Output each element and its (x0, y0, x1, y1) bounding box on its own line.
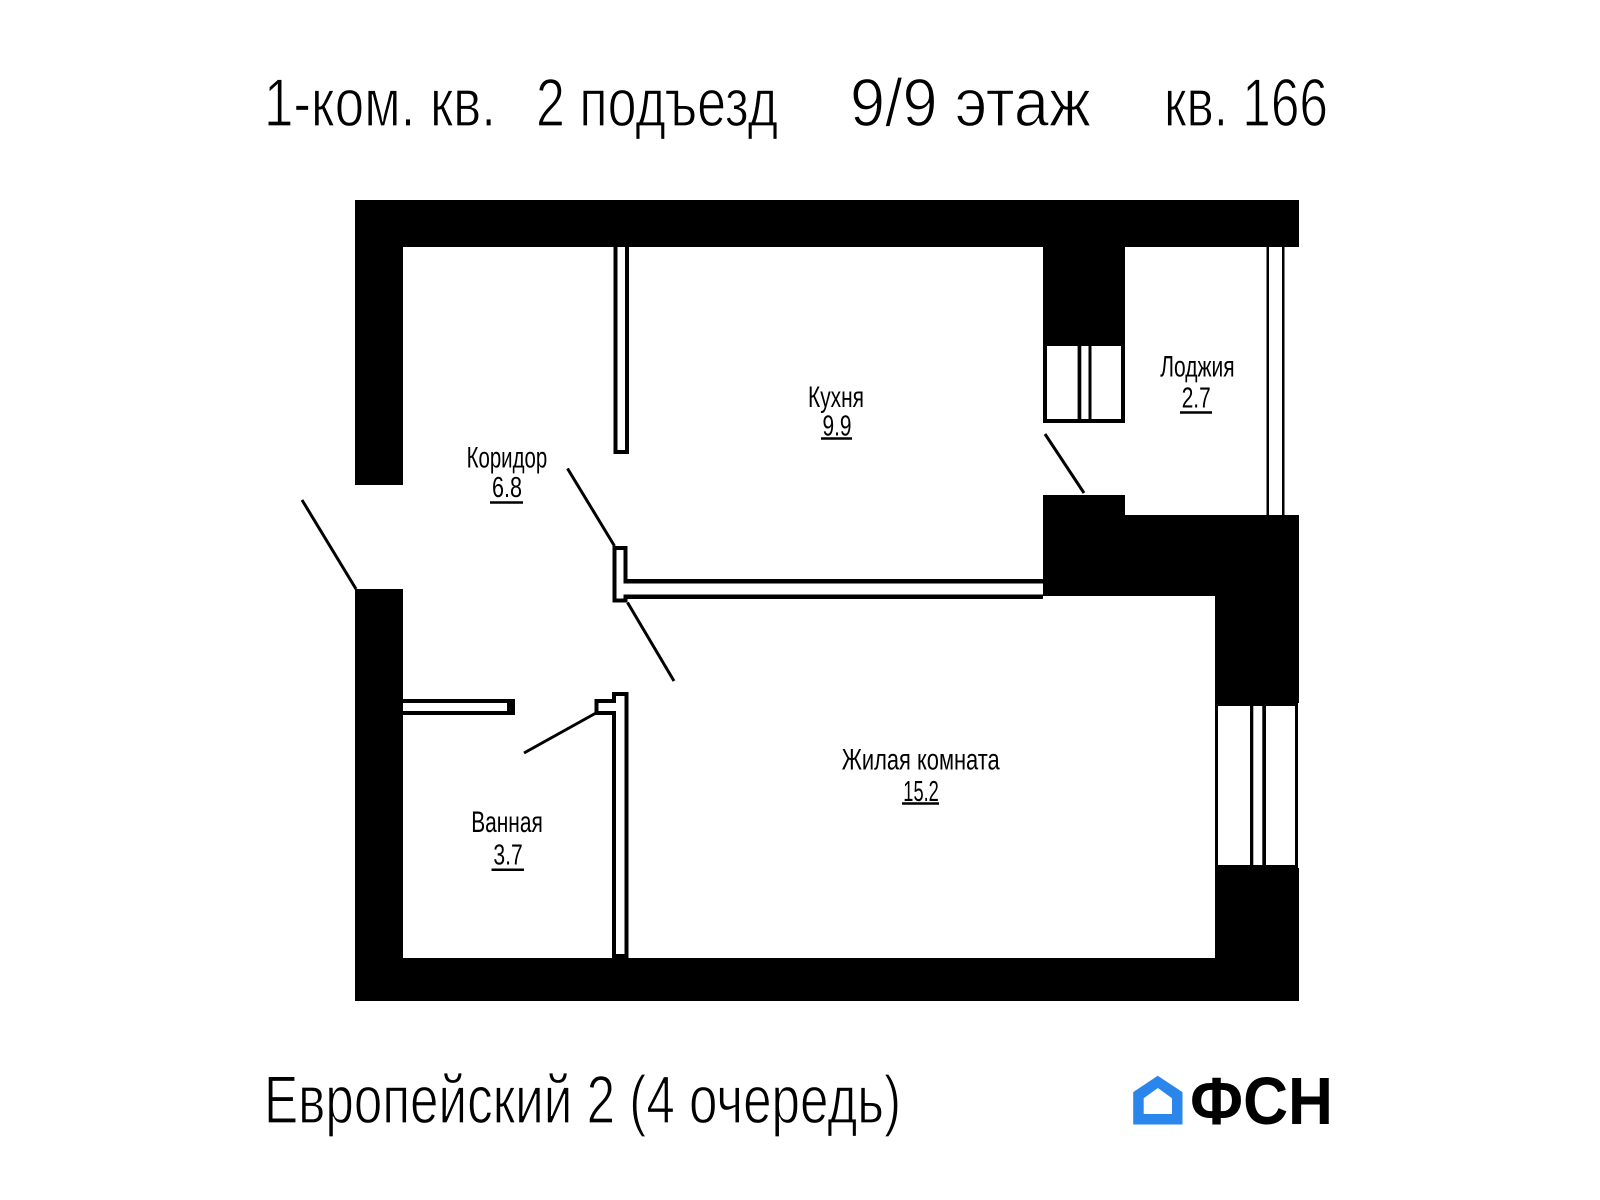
svg-text:Лоджия: Лоджия (1160, 350, 1234, 383)
svg-text:Жилая комната: Жилая комната (842, 743, 1000, 776)
svg-text:Ванная: Ванная (471, 806, 543, 839)
svg-text:Кухня: Кухня (808, 381, 864, 414)
svg-text:2.7: 2.7 (1182, 382, 1211, 414)
svg-text:9/9 этаж: 9/9 этаж (850, 65, 1091, 141)
svg-text:кв. 166: кв. 166 (1164, 65, 1328, 141)
svg-text:ФСН: ФСН (1190, 1064, 1333, 1139)
svg-text:Европейский 2 (4 очередь): Европейский 2 (4 очередь) (264, 1062, 901, 1138)
svg-text:6.8: 6.8 (492, 472, 522, 504)
svg-text:Коридор: Коридор (467, 442, 548, 475)
svg-text:2 подъезд: 2 подъезд (536, 65, 778, 141)
svg-text:1-ком. кв.: 1-ком. кв. (264, 65, 496, 141)
svg-text:3.7: 3.7 (493, 839, 522, 871)
